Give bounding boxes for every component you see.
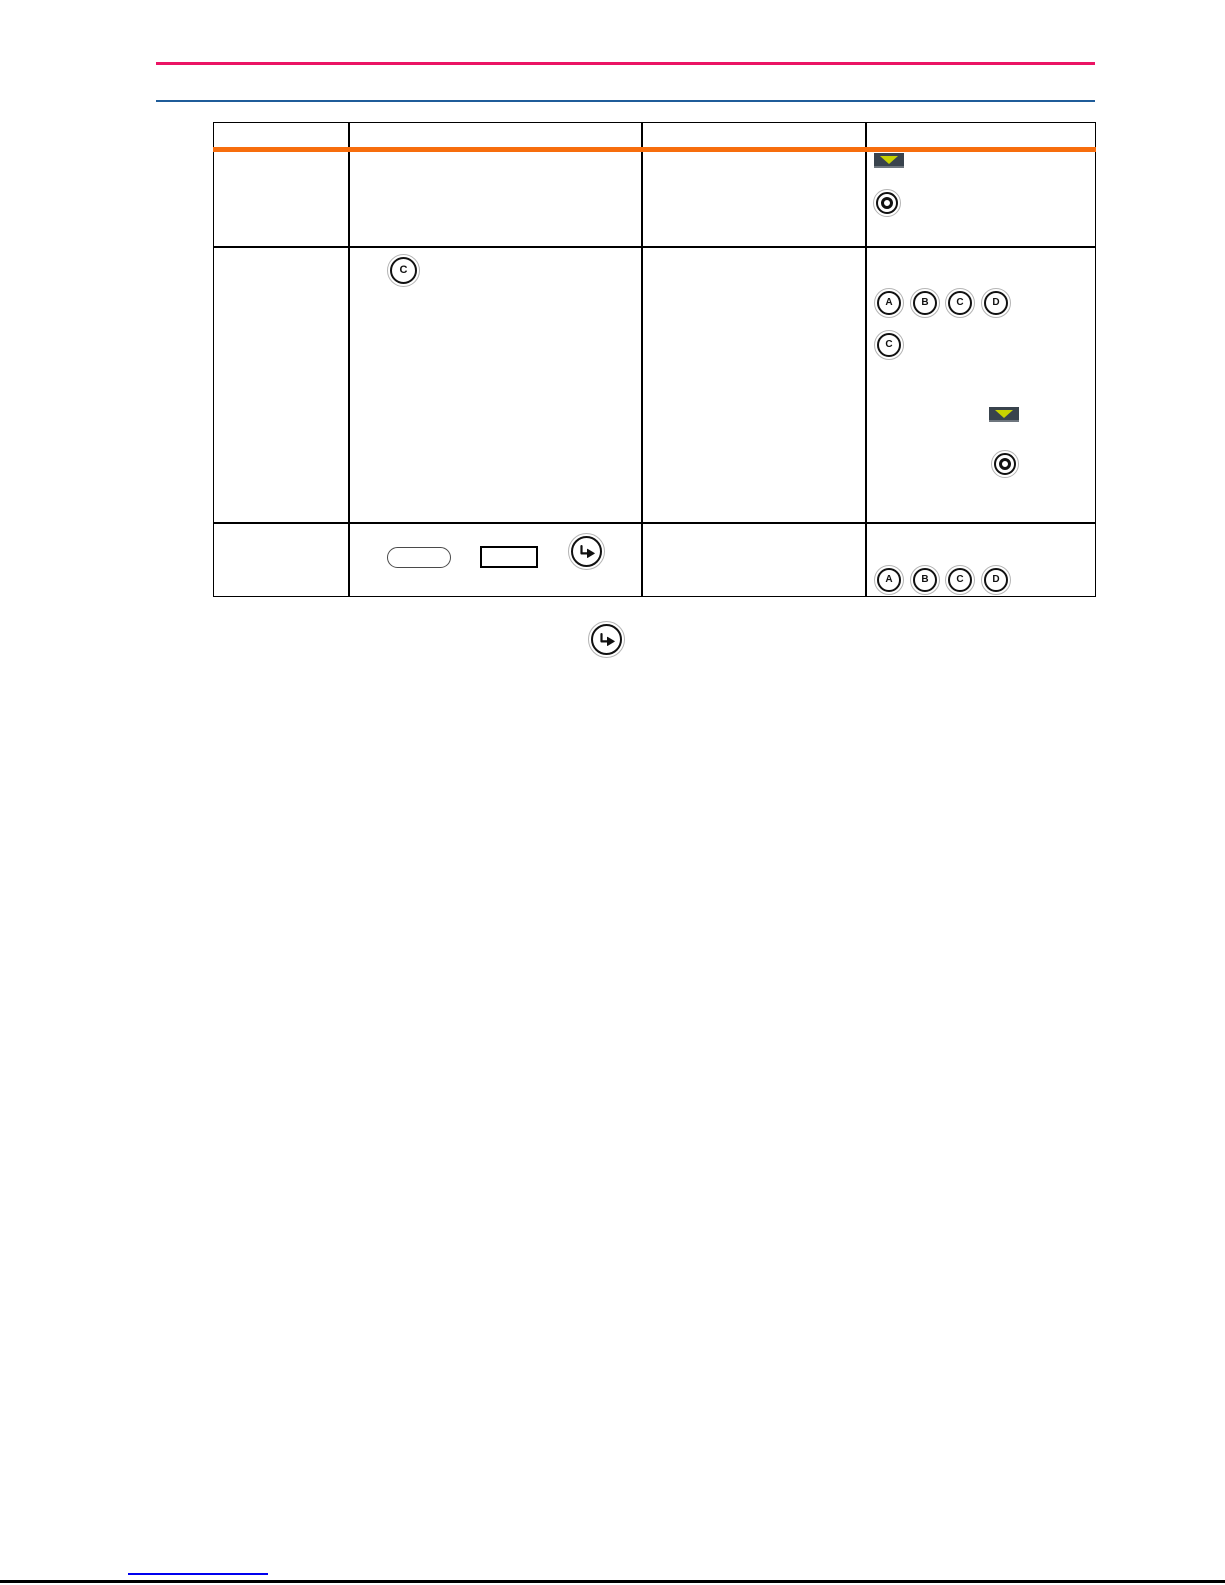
letter-key-d-icon: D <box>981 288 1011 318</box>
top-rule <box>156 62 1095 65</box>
cell-r1c1 <box>214 152 348 246</box>
letter-key-c-icon: C <box>945 565 975 595</box>
cell-r3c4: A B C D <box>866 524 1095 594</box>
table-header-accent-bar <box>213 147 1096 152</box>
letter-key-c-icon: C <box>945 288 975 318</box>
letter-key-a-icon: A <box>874 565 904 595</box>
cell-r2c4: A B C D C <box>866 248 1095 522</box>
page-canvas: C A B C D C <box>0 0 1225 1585</box>
enter-arrow-key-icon <box>588 621 625 658</box>
arrow-down-triangle <box>880 156 898 164</box>
cell-r3c3 <box>642 524 865 594</box>
letter-key-c-icon: C <box>387 254 420 287</box>
enter-arrow-glyph <box>576 541 598 563</box>
cell-r1c4 <box>866 152 1095 246</box>
key-label: A <box>885 575 892 585</box>
header-cell-1 <box>214 123 348 147</box>
cell-r3c2 <box>349 524 641 594</box>
key-label: B <box>921 575 928 585</box>
arrow-down-key-icon <box>874 153 904 168</box>
cell-r1c2 <box>349 152 641 246</box>
header-cell-2 <box>349 123 641 147</box>
letter-key-b-icon: B <box>910 565 940 595</box>
header-cell-3 <box>642 123 865 147</box>
cell-r2c3 <box>642 248 865 522</box>
enter-arrow-glyph <box>596 629 618 651</box>
key-label: D <box>992 575 999 585</box>
pill-outline-icon <box>387 547 451 568</box>
key-label: C <box>885 340 892 350</box>
key-label: A <box>885 298 892 308</box>
cell-r3c1 <box>214 524 348 594</box>
key-label: B <box>921 298 928 308</box>
rectangle-outline-icon <box>480 546 538 568</box>
key-label: D <box>992 298 999 308</box>
secondary-rule <box>156 100 1095 102</box>
letter-key-c-icon: C <box>874 330 904 360</box>
concentric-ring-key-icon <box>991 450 1019 478</box>
arrow-down-triangle <box>995 410 1013 418</box>
cell-r1c3 <box>642 152 865 246</box>
enter-arrow-key-icon <box>568 533 605 570</box>
key-label: C <box>956 575 963 585</box>
arrow-down-key-icon <box>989 407 1019 422</box>
header-cell-4 <box>866 123 1095 147</box>
footer-link[interactable] <box>128 1573 268 1575</box>
key-label: C <box>956 298 963 308</box>
concentric-ring-key-icon <box>873 189 901 217</box>
letter-key-a-icon: A <box>874 288 904 318</box>
icon-table: C A B C D C <box>213 122 1096 597</box>
cell-r2c1 <box>214 248 348 522</box>
key-label: C <box>400 265 408 276</box>
cell-r2c2: C <box>349 248 641 522</box>
letter-key-b-icon: B <box>910 288 940 318</box>
letter-key-d-icon: D <box>981 565 1011 595</box>
footer-rule <box>0 1580 1225 1583</box>
